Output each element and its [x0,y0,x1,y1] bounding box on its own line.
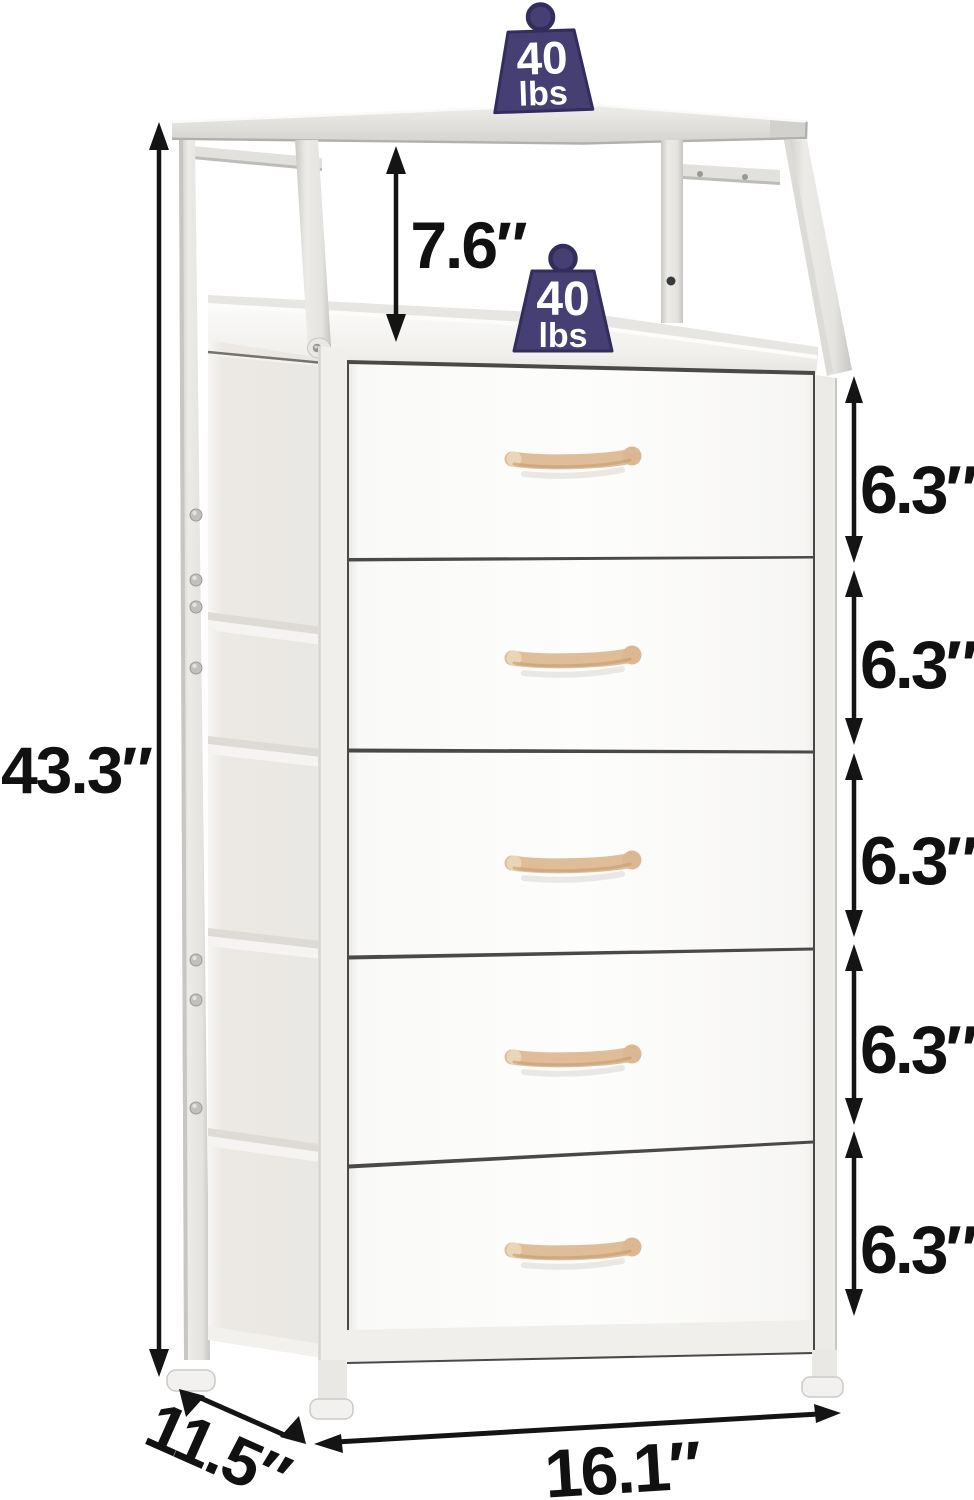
svg-text:16.1″: 16.1″ [542,1427,703,1500]
svg-text:lbs: lbs [518,74,568,114]
svg-text:6.3″: 6.3″ [860,1212,974,1288]
svg-text:6.3″: 6.3″ [860,823,974,899]
svg-text:43.3″: 43.3″ [1,733,152,807]
svg-text:lbs: lbs [538,317,587,355]
svg-text:6.3″: 6.3″ [860,627,974,703]
svg-text:7.6″: 7.6″ [410,208,527,282]
svg-text:6.3″: 6.3″ [860,452,974,528]
svg-text:6.3″: 6.3″ [860,1012,974,1088]
